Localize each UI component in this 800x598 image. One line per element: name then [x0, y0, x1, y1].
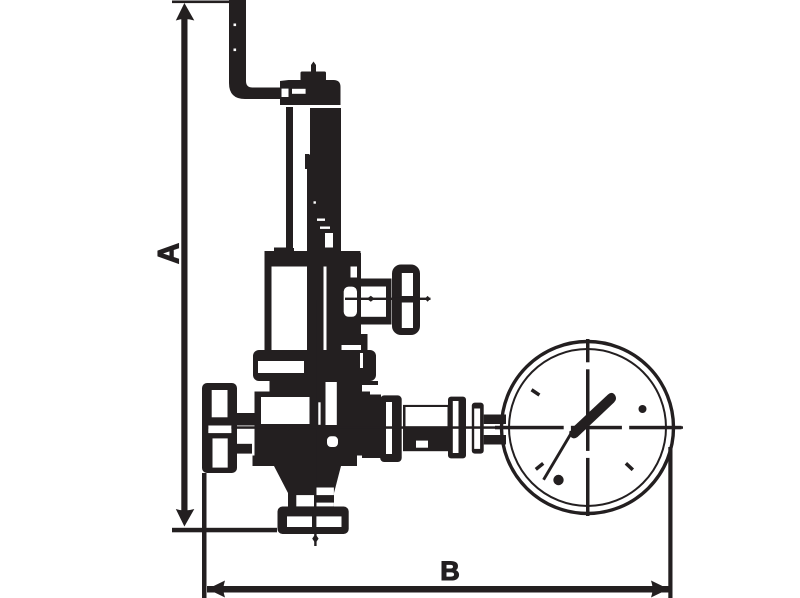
svg-text:B: B: [440, 556, 460, 586]
svg-text:A: A: [152, 243, 185, 264]
